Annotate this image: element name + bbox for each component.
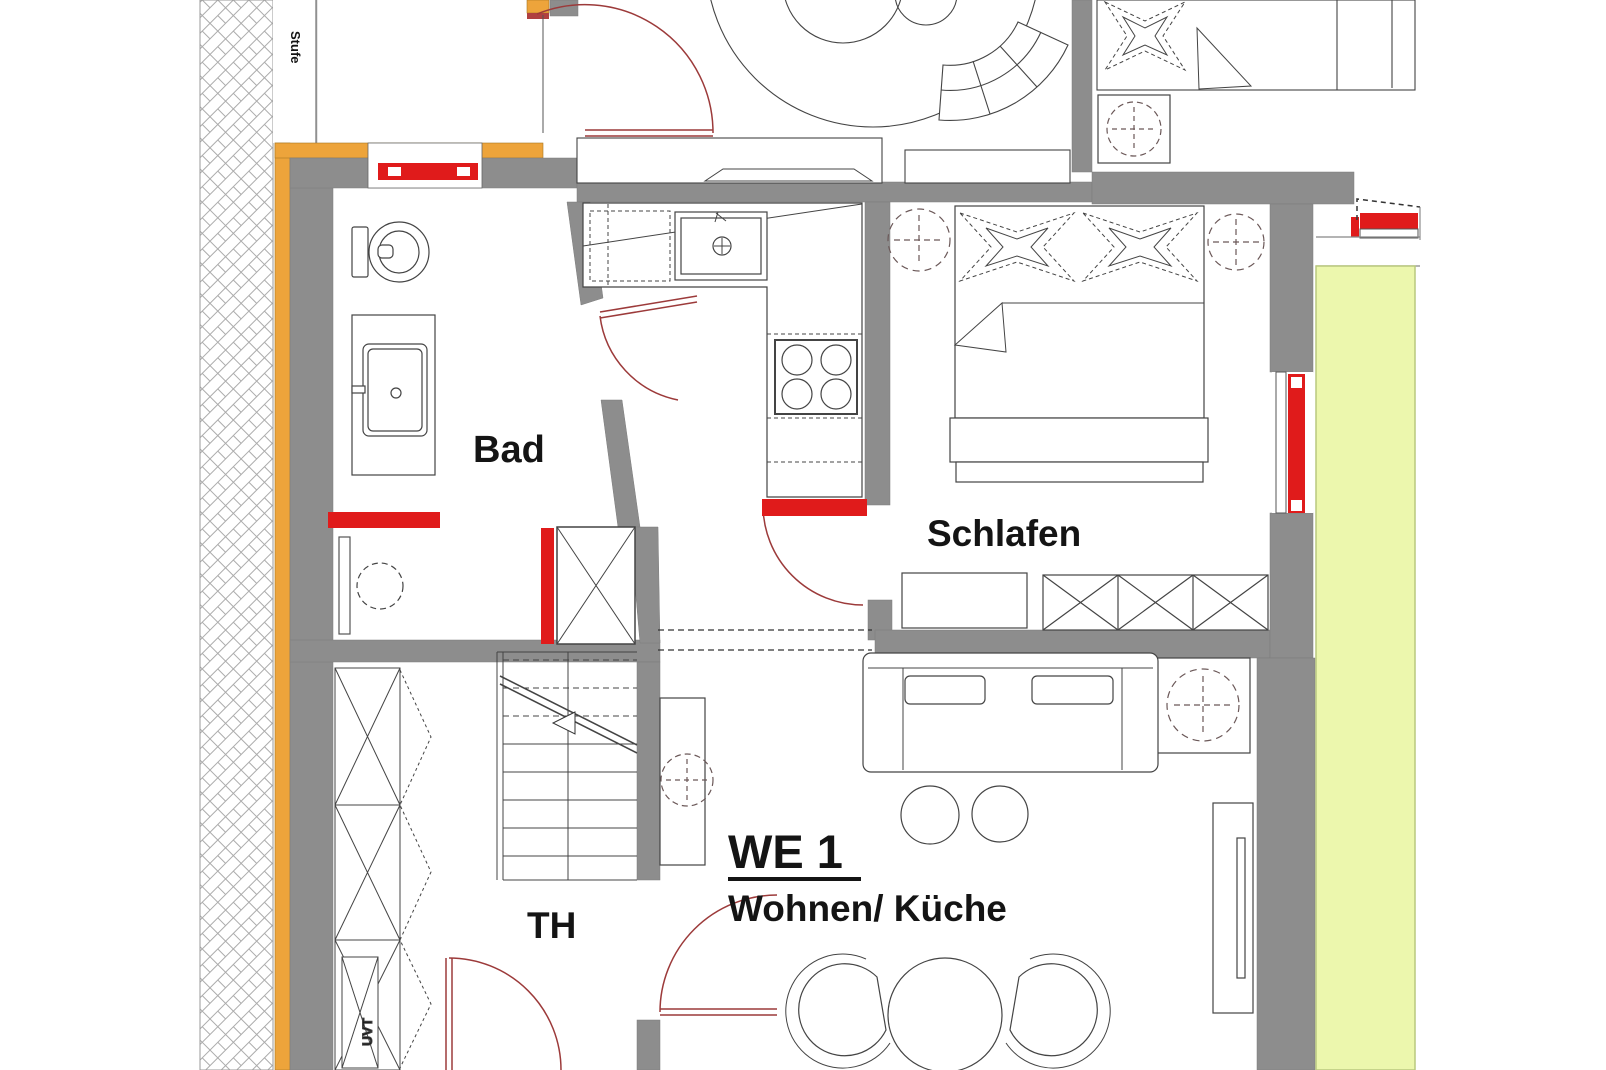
wall-kitchen-bedroom	[865, 202, 890, 505]
pouf	[972, 786, 1028, 842]
bath-label: Bad	[473, 429, 545, 471]
living-kitchen-label: Wohnen/ Küche	[728, 888, 1007, 929]
wall-right-mid	[1270, 513, 1313, 658]
uvt-label: UVT	[359, 1018, 375, 1046]
balcony-floor	[1316, 266, 1415, 1070]
wall-stairwell-stub	[637, 1020, 660, 1070]
wall-right-upper	[1270, 204, 1313, 372]
counter	[905, 150, 1070, 183]
stove	[775, 340, 857, 414]
radiator	[328, 512, 440, 528]
ceiling-lamp-icon	[661, 754, 713, 806]
wall-left	[290, 158, 333, 1070]
uvt-shaft: UVT	[342, 957, 378, 1068]
kitchen-sink	[675, 212, 767, 280]
wall-top-right	[1092, 172, 1354, 204]
towel-radiator	[339, 537, 350, 634]
sofa	[863, 653, 1158, 772]
sideboard	[577, 138, 882, 183]
unit-label-underline	[728, 877, 861, 881]
stairwell-label: TH	[527, 905, 576, 946]
window-red-bar	[1360, 213, 1418, 229]
step-label: Stufe	[288, 31, 303, 64]
single-bed	[1097, 0, 1415, 90]
shaft-red-marker	[541, 528, 554, 644]
floor-plan: Stufe	[0, 0, 1606, 1070]
wall-upper-room	[1072, 0, 1092, 172]
balcony	[1316, 237, 1420, 1070]
toilet	[352, 222, 429, 282]
wall-top-mid	[577, 182, 1092, 202]
dresser	[902, 573, 1027, 628]
wall-stairwell	[637, 662, 660, 880]
bath-window	[368, 143, 482, 188]
installation-shaft	[557, 527, 635, 644]
double-bed	[950, 206, 1208, 482]
wardrobe	[1043, 575, 1268, 630]
radiator	[762, 499, 867, 516]
tv-sideboard	[1213, 803, 1253, 1013]
dining-table	[888, 958, 1002, 1070]
step-strip	[273, 0, 316, 143]
bedroom-label: Schlafen	[927, 513, 1081, 554]
pouf	[901, 786, 959, 844]
washbasin	[352, 315, 435, 475]
floor-plan-canvas: Stufe	[0, 0, 1606, 1070]
hall-shelf	[660, 698, 705, 865]
window-red-bar	[1288, 374, 1305, 513]
wall-right-lower	[1257, 658, 1315, 1070]
unit-label: WE 1	[728, 825, 843, 878]
bedroom-window	[1272, 372, 1313, 513]
